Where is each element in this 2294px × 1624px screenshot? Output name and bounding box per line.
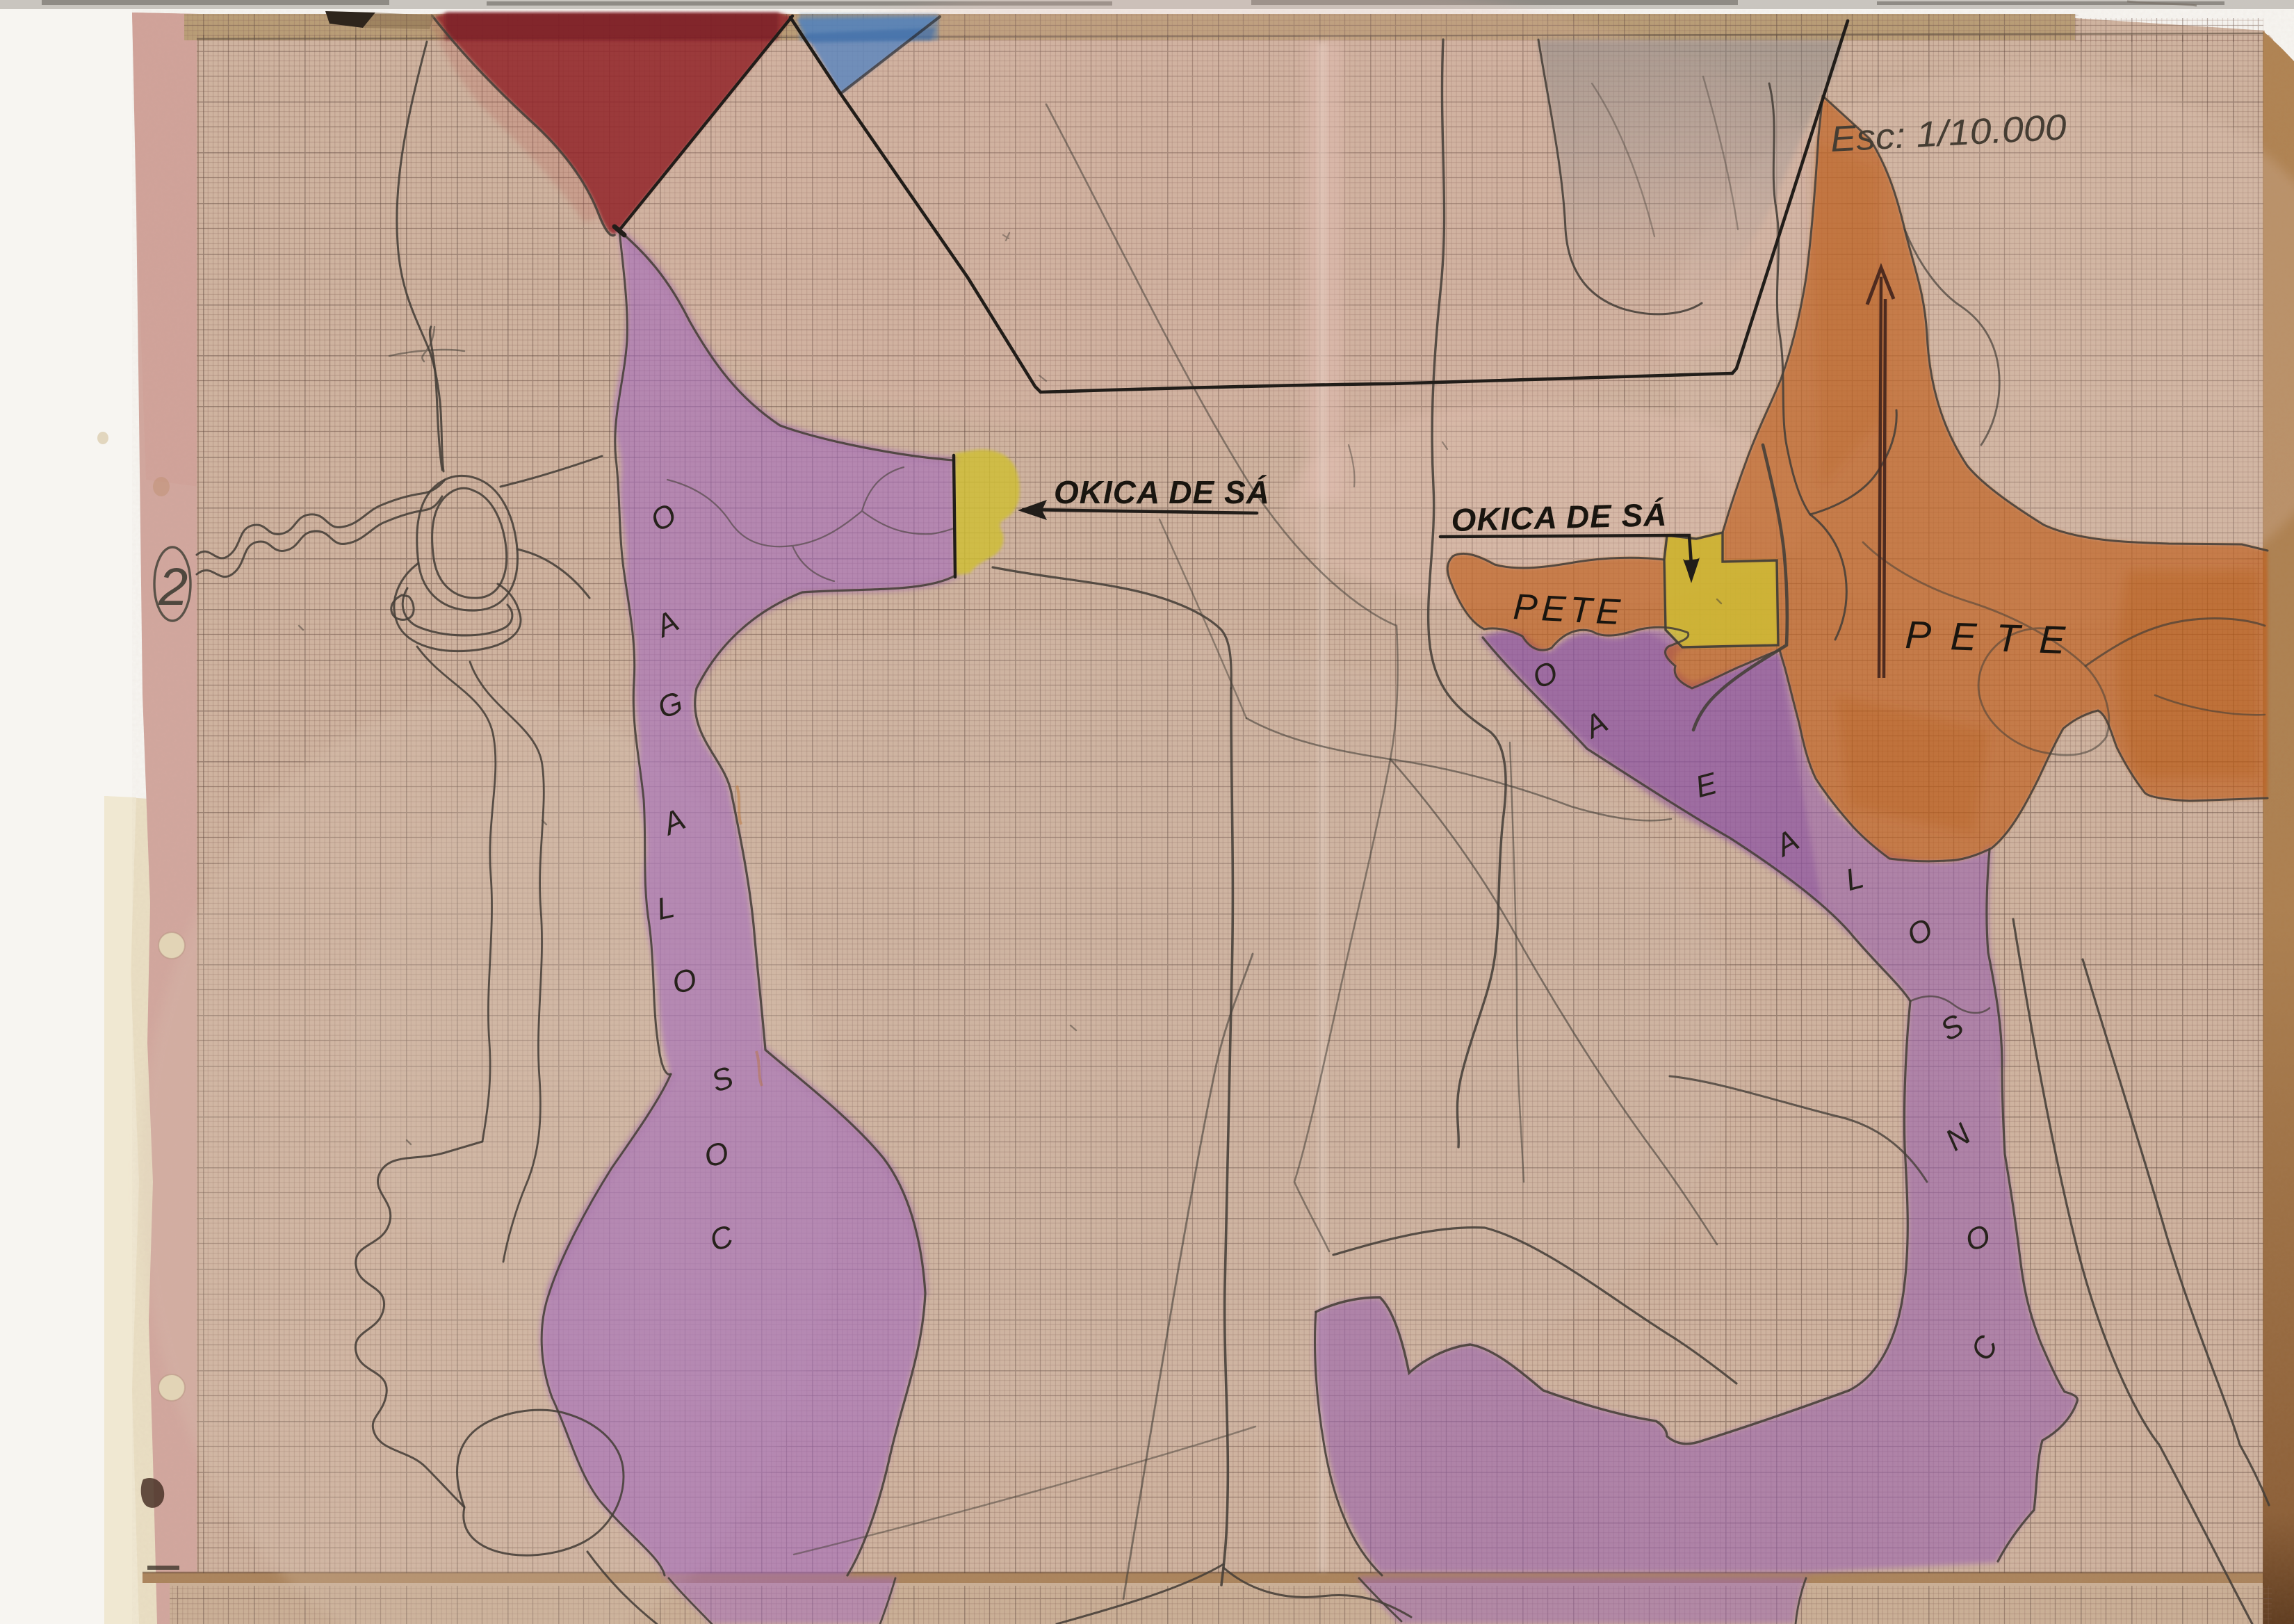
svg-text:OKICA DE SÁ: OKICA DE SÁ — [1054, 474, 1270, 510]
svg-text:PETE: PETE — [1905, 612, 2085, 663]
svg-text:OKICA DE SÁ: OKICA DE SÁ — [1451, 496, 1668, 538]
svg-text:PETE: PETE — [1512, 587, 1625, 633]
svg-text:2: 2 — [158, 558, 188, 617]
